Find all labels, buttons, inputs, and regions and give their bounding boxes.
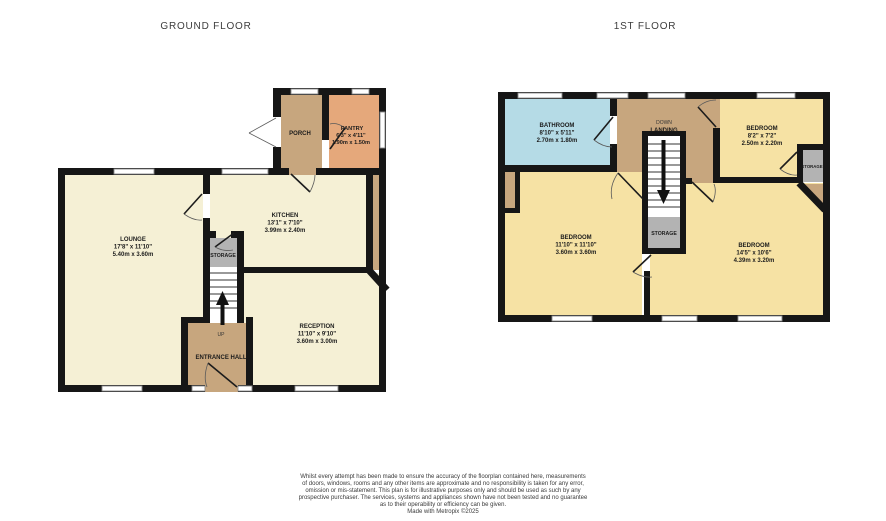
front-door-opening (205, 385, 238, 392)
bedroom-left-dims-m: 3.60m x 3.60m (556, 250, 597, 256)
bedroom-right-label: BEDROOM (738, 243, 769, 249)
entrance-hall-label: ENTRANCE HALL (196, 355, 247, 361)
pantry-dims-ft: 6'3" x 4'11" (336, 133, 366, 139)
bedroom-right-dims-m: 4.39m x 3.20m (734, 258, 775, 264)
first-floor-plan: BATHROOM 8'10" x 5'11" 2.70m x 1.80m DOW… (498, 92, 830, 322)
lounge-dims-m: 5.40m x 3.60m (113, 252, 154, 258)
lounge-label: LOUNGE (120, 237, 146, 243)
kitchen-label: KITCHEN (272, 213, 299, 219)
stairs-down-label: DOWN (656, 120, 672, 126)
floorplan-drawing: LOUNGE 17'8" x 11'10" 5.40m x 3.60m KITC… (0, 0, 886, 521)
bedroom-small-label: BEDROOM (746, 126, 777, 132)
kitchen-dims-ft: 13'1" x 7'10" (267, 221, 302, 227)
bedroom-small-dims-ft: 8'2" x 7'2" (748, 134, 777, 140)
ff-storage-mid-label: STORAGE (651, 231, 677, 237)
disclaimer-line: of doors, windows, rooms and any other i… (203, 481, 683, 488)
bedroom-small-dims-m: 2.50m x 2.20m (742, 141, 783, 147)
disclaimer-line: Whilst every attempt has been made to en… (203, 474, 683, 481)
stairs-up-label: UP (218, 332, 226, 338)
disclaimer: Whilst every attempt has been made to en… (203, 474, 683, 516)
bedroom-right-dims-ft: 14'5" x 10'6" (736, 251, 771, 257)
pantry-dims-m: 1.90m x 1.50m (332, 140, 370, 146)
reception-label: RECEPTION (299, 324, 334, 330)
landing-label: LANDING (650, 128, 678, 134)
reception-dims-ft: 11'10" x 9'10" (298, 332, 336, 338)
kitchen-dims-m: 3.99m x 2.40m (265, 228, 306, 234)
floorplan-page: GROUND FLOOR 1ST FLOOR (0, 0, 886, 521)
gf-storage-label: STORAGE (210, 253, 236, 259)
porch-label: PORCH (289, 131, 311, 137)
disclaimer-credit: Made with Metropix ©2025 (203, 509, 683, 516)
bathroom-dims-m: 2.70m x 1.80m (537, 138, 578, 144)
bedroom-left-label: BEDROOM (560, 235, 591, 241)
bathroom-dims-ft: 8'10" x 5'11" (540, 131, 575, 137)
bathroom-label: BATHROOM (540, 123, 575, 129)
disclaimer-line: prospective purchaser. The services, sys… (203, 495, 683, 502)
reception-dims-m: 3.60m x 3.00m (297, 339, 338, 345)
ff-storage-right-label: STORAGE (801, 164, 822, 169)
side-passage-strip (373, 175, 379, 270)
room-bedroom-right-a (686, 183, 823, 315)
disclaimer-line: omission or mis-statement. This plan is … (203, 488, 683, 495)
room-bedroom-right-b (650, 254, 686, 315)
ground-floor-plan: LOUNGE 17'8" x 11'10" 5.40m x 3.60m KITC… (58, 88, 387, 392)
pantry-label: PANTRY (341, 126, 364, 132)
bedroom-left-dims-ft: 11'10" x 11'10" (555, 243, 596, 249)
lounge-dims-ft: 17'8" x 11'10" (114, 245, 152, 251)
